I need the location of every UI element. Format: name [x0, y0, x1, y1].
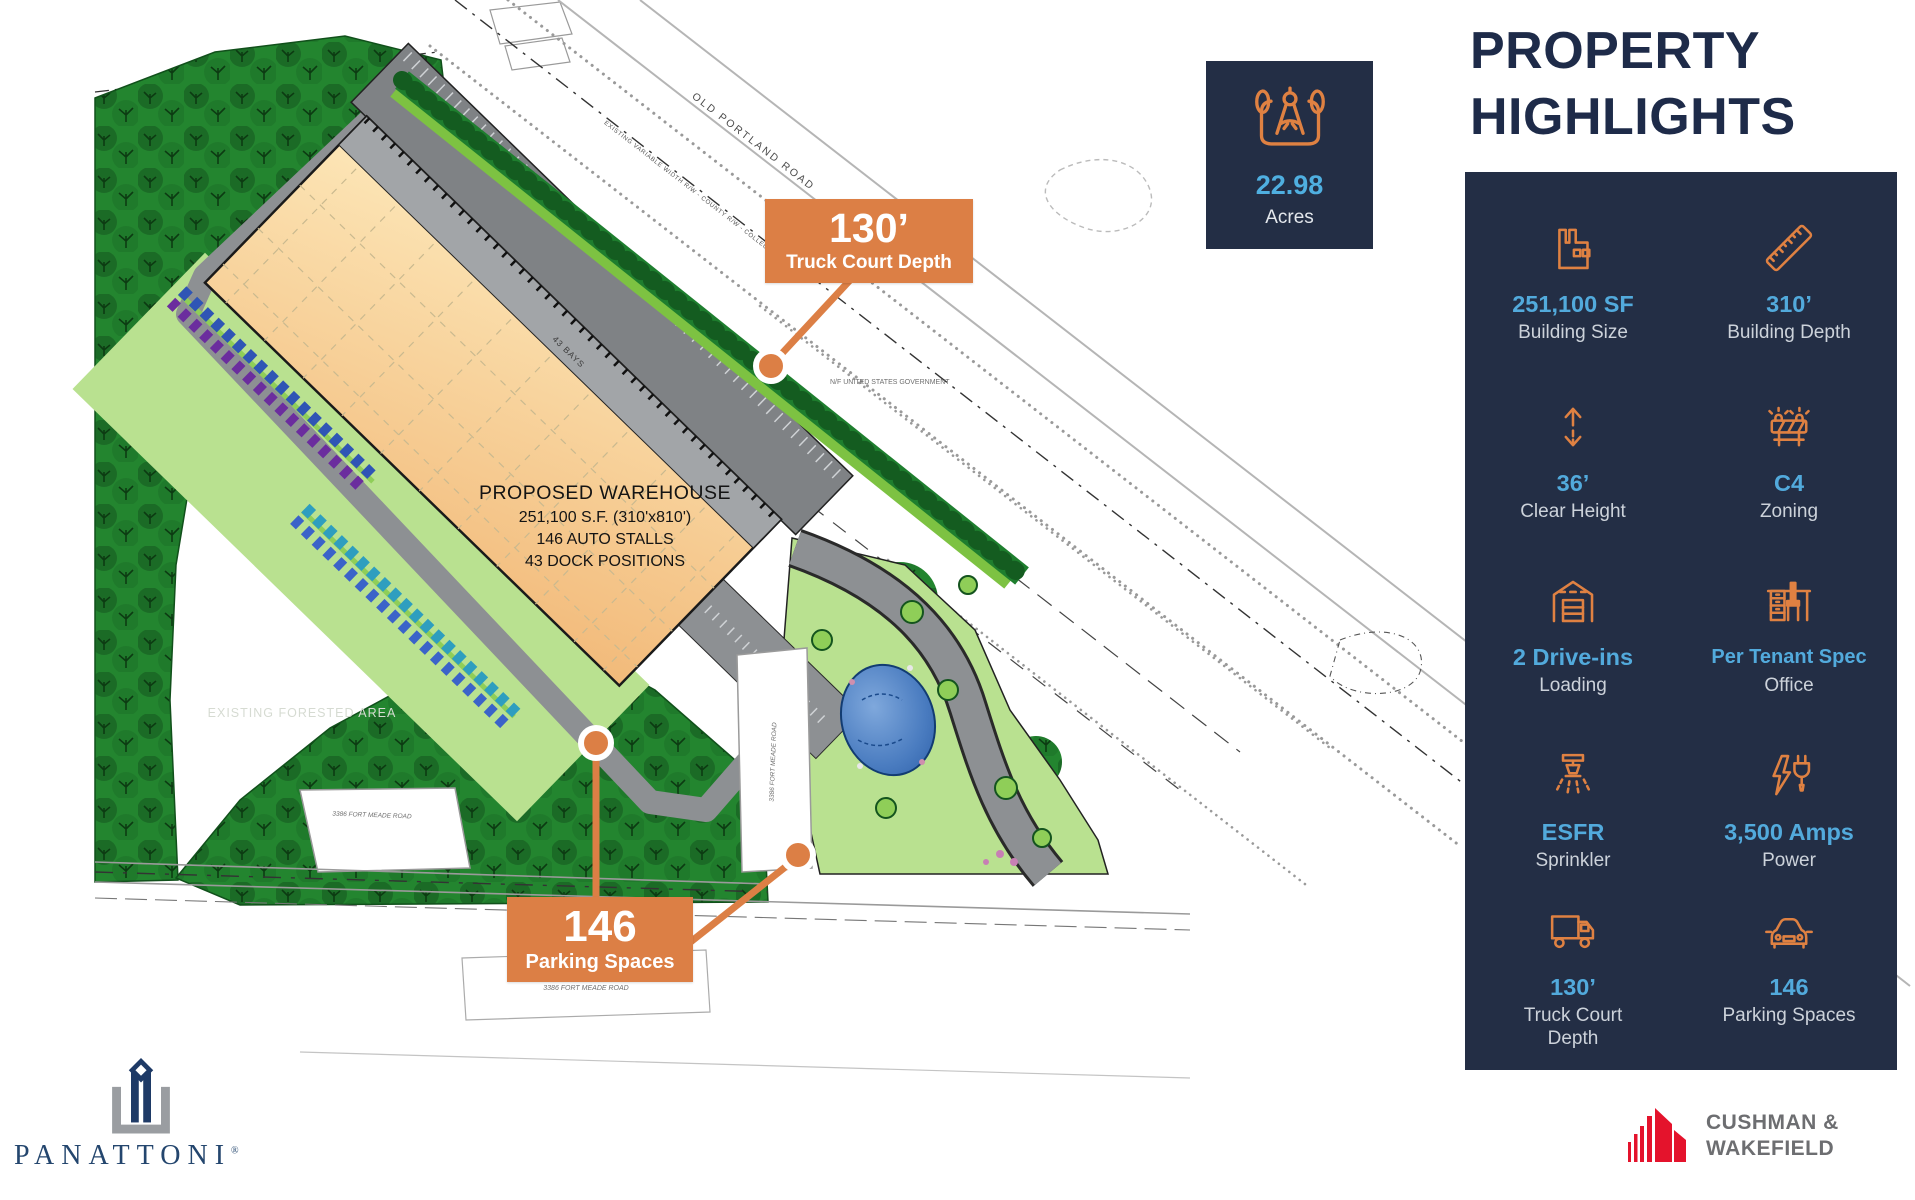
height-arrows-icon [1544, 398, 1602, 461]
ruler-icon [1760, 219, 1818, 282]
sprinkler-icon [1544, 747, 1602, 810]
truck-icon [1544, 902, 1602, 965]
parking-callout: 146 Parking Spaces [507, 897, 693, 982]
parcel-label: N/F UNITED STATES GOVERNMENT [830, 379, 950, 386]
cushman-wakefield-logo-text: CUSHMAN & WAKEFIELD [1706, 1110, 1839, 1162]
stat-building-depth: 310’ Building Depth [1681, 219, 1897, 344]
stat-building-size: 251,100 SF Building Size [1465, 219, 1681, 344]
page-title: PROPERTY HIGHLIGHTS [1470, 18, 1910, 150]
stat-clear-height: 36’ Clear Height [1465, 398, 1681, 523]
stat-value: 251,100 SF [1512, 292, 1634, 316]
property-highlights-panel: 251,100 SF Building Size 310’ Building D… [1465, 172, 1897, 1070]
stat-label: Building Size [1518, 321, 1628, 344]
forest-area-label: EXISTING FORESTED AREA [208, 706, 397, 720]
stat-value: C4 [1774, 471, 1804, 495]
panattoni-logo-text: PANATTONI® [14, 1140, 294, 1172]
power-plug-icon [1760, 747, 1818, 810]
parking-label: Parking Spaces [507, 951, 693, 974]
flyer-canvas: 43 BAYS [0, 0, 1915, 1200]
barricade-icon [1760, 398, 1818, 461]
panattoni-logo-mark [103, 1058, 179, 1143]
stat-label: Zoning [1760, 500, 1818, 523]
stat-label: Parking Spaces [1722, 1004, 1855, 1027]
desk-icon [1760, 572, 1818, 635]
parking-value: 146 [507, 905, 693, 950]
stat-value: 146 [1769, 975, 1808, 999]
warehouse-stalls: 146 AUTO STALLS [455, 531, 755, 549]
garage-icon [1544, 572, 1602, 635]
acres-label: Acres [1265, 207, 1314, 229]
stat-zoning: C4 Zoning [1681, 398, 1897, 523]
warehouse-title: PROPOSED WAREHOUSE [455, 482, 755, 505]
page-title-line1: PROPERTY [1470, 18, 1910, 84]
warehouse-sf: 251,100 S.F. (310'x810') [455, 509, 755, 527]
truck-court-label: Truck Court Depth [765, 252, 973, 274]
acres-value: 22.98 [1256, 170, 1324, 201]
cushman-wakefield-logo-mark [1628, 1100, 1698, 1171]
cushman-line2: WAKEFIELD [1706, 1136, 1839, 1162]
parking-marker-1 [581, 728, 611, 758]
car-icon [1760, 902, 1818, 965]
stat-value: Per Tenant Spec [1711, 645, 1866, 669]
stat-loading: 2 Drive-ins Loading [1465, 572, 1681, 697]
acres-card: 22.98 Acres [1206, 61, 1373, 249]
stat-power: 3,500 Amps Power [1681, 747, 1897, 872]
drafting-compass-icon [1252, 81, 1328, 162]
page-title-line2: HIGHLIGHTS [1470, 84, 1910, 150]
stat-label: Office [1764, 674, 1813, 697]
stat-value: ESFR [1542, 820, 1605, 844]
stat-value: 130’ [1550, 975, 1596, 999]
stat-office: Per Tenant Spec Office [1681, 572, 1897, 697]
truck-court-marker [756, 351, 786, 381]
stat-sprinkler: ESFR Sprinkler [1465, 747, 1681, 872]
stat-label: Sprinkler [1536, 849, 1611, 872]
stat-value: 310’ [1766, 292, 1812, 316]
address-label-3: 3386 FORT MEADE ROAD [543, 985, 628, 992]
truck-court-callout: 130’ Truck Court Depth [765, 199, 973, 283]
stat-parking: 146 Parking Spaces [1681, 902, 1897, 1027]
warehouse-docks: 43 DOCK POSITIONS [455, 553, 755, 571]
stat-value: 2 Drive-ins [1513, 645, 1633, 669]
registered-mark: ® [231, 1146, 239, 1157]
road-label: OLD PORTLAND ROAD [690, 90, 818, 193]
stat-label: Truck Court Depth [1513, 1004, 1633, 1050]
factory-icon [1544, 219, 1602, 282]
truck-court-value: 130’ [765, 208, 973, 250]
cushman-line1: CUSHMAN & [1706, 1110, 1839, 1136]
stat-label: Power [1762, 849, 1816, 872]
stat-value: 3,500 Amps [1724, 820, 1854, 844]
stat-value: 36’ [1557, 471, 1590, 495]
stat-truck-court: 130’ Truck Court Depth [1465, 902, 1681, 1050]
stat-label: Building Depth [1727, 321, 1851, 344]
stat-label: Clear Height [1520, 500, 1626, 523]
stat-label: Loading [1539, 674, 1607, 697]
warehouse-label-block: PROPOSED WAREHOUSE 251,100 S.F. (310'x81… [455, 482, 755, 571]
parking-marker-2 [783, 840, 813, 870]
panattoni-name: PANATTONI [14, 1140, 231, 1171]
